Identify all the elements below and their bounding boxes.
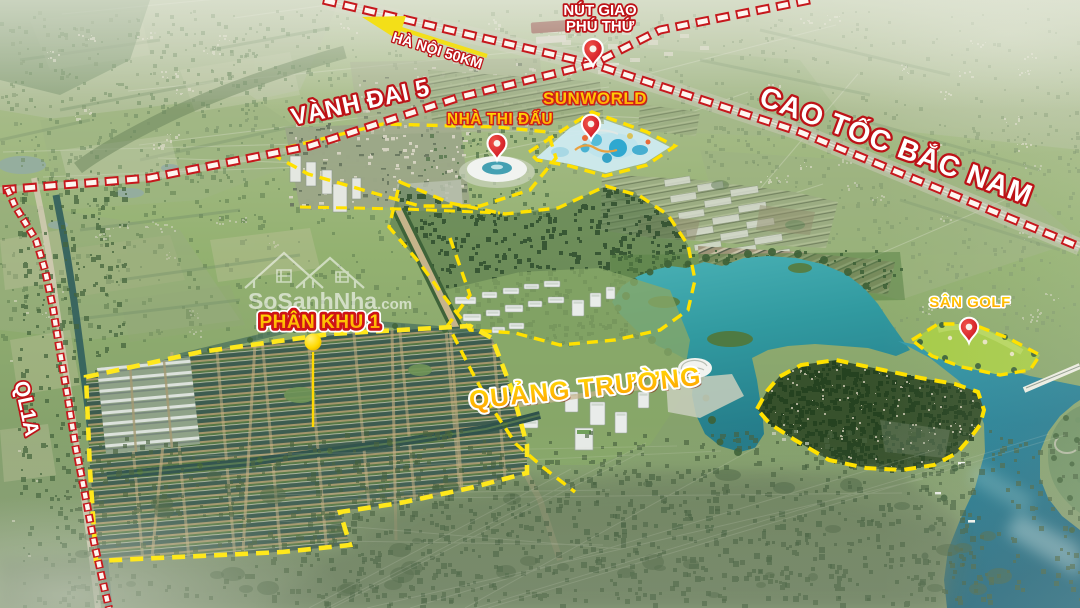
svg-text:PHÂN KHU 1: PHÂN KHU 1 [259,311,380,333]
svg-text:SÂN GOLF: SÂN GOLF [929,293,1011,311]
svg-text:SUNWORLD: SUNWORLD [543,89,647,108]
svg-text:NHÀ THI ĐẤU: NHÀ THI ĐẤU [447,111,553,128]
svg-text:PHÚ THỨ: PHÚ THỨ [566,17,635,35]
svg-text:NÚT GIAO: NÚT GIAO [563,1,637,19]
